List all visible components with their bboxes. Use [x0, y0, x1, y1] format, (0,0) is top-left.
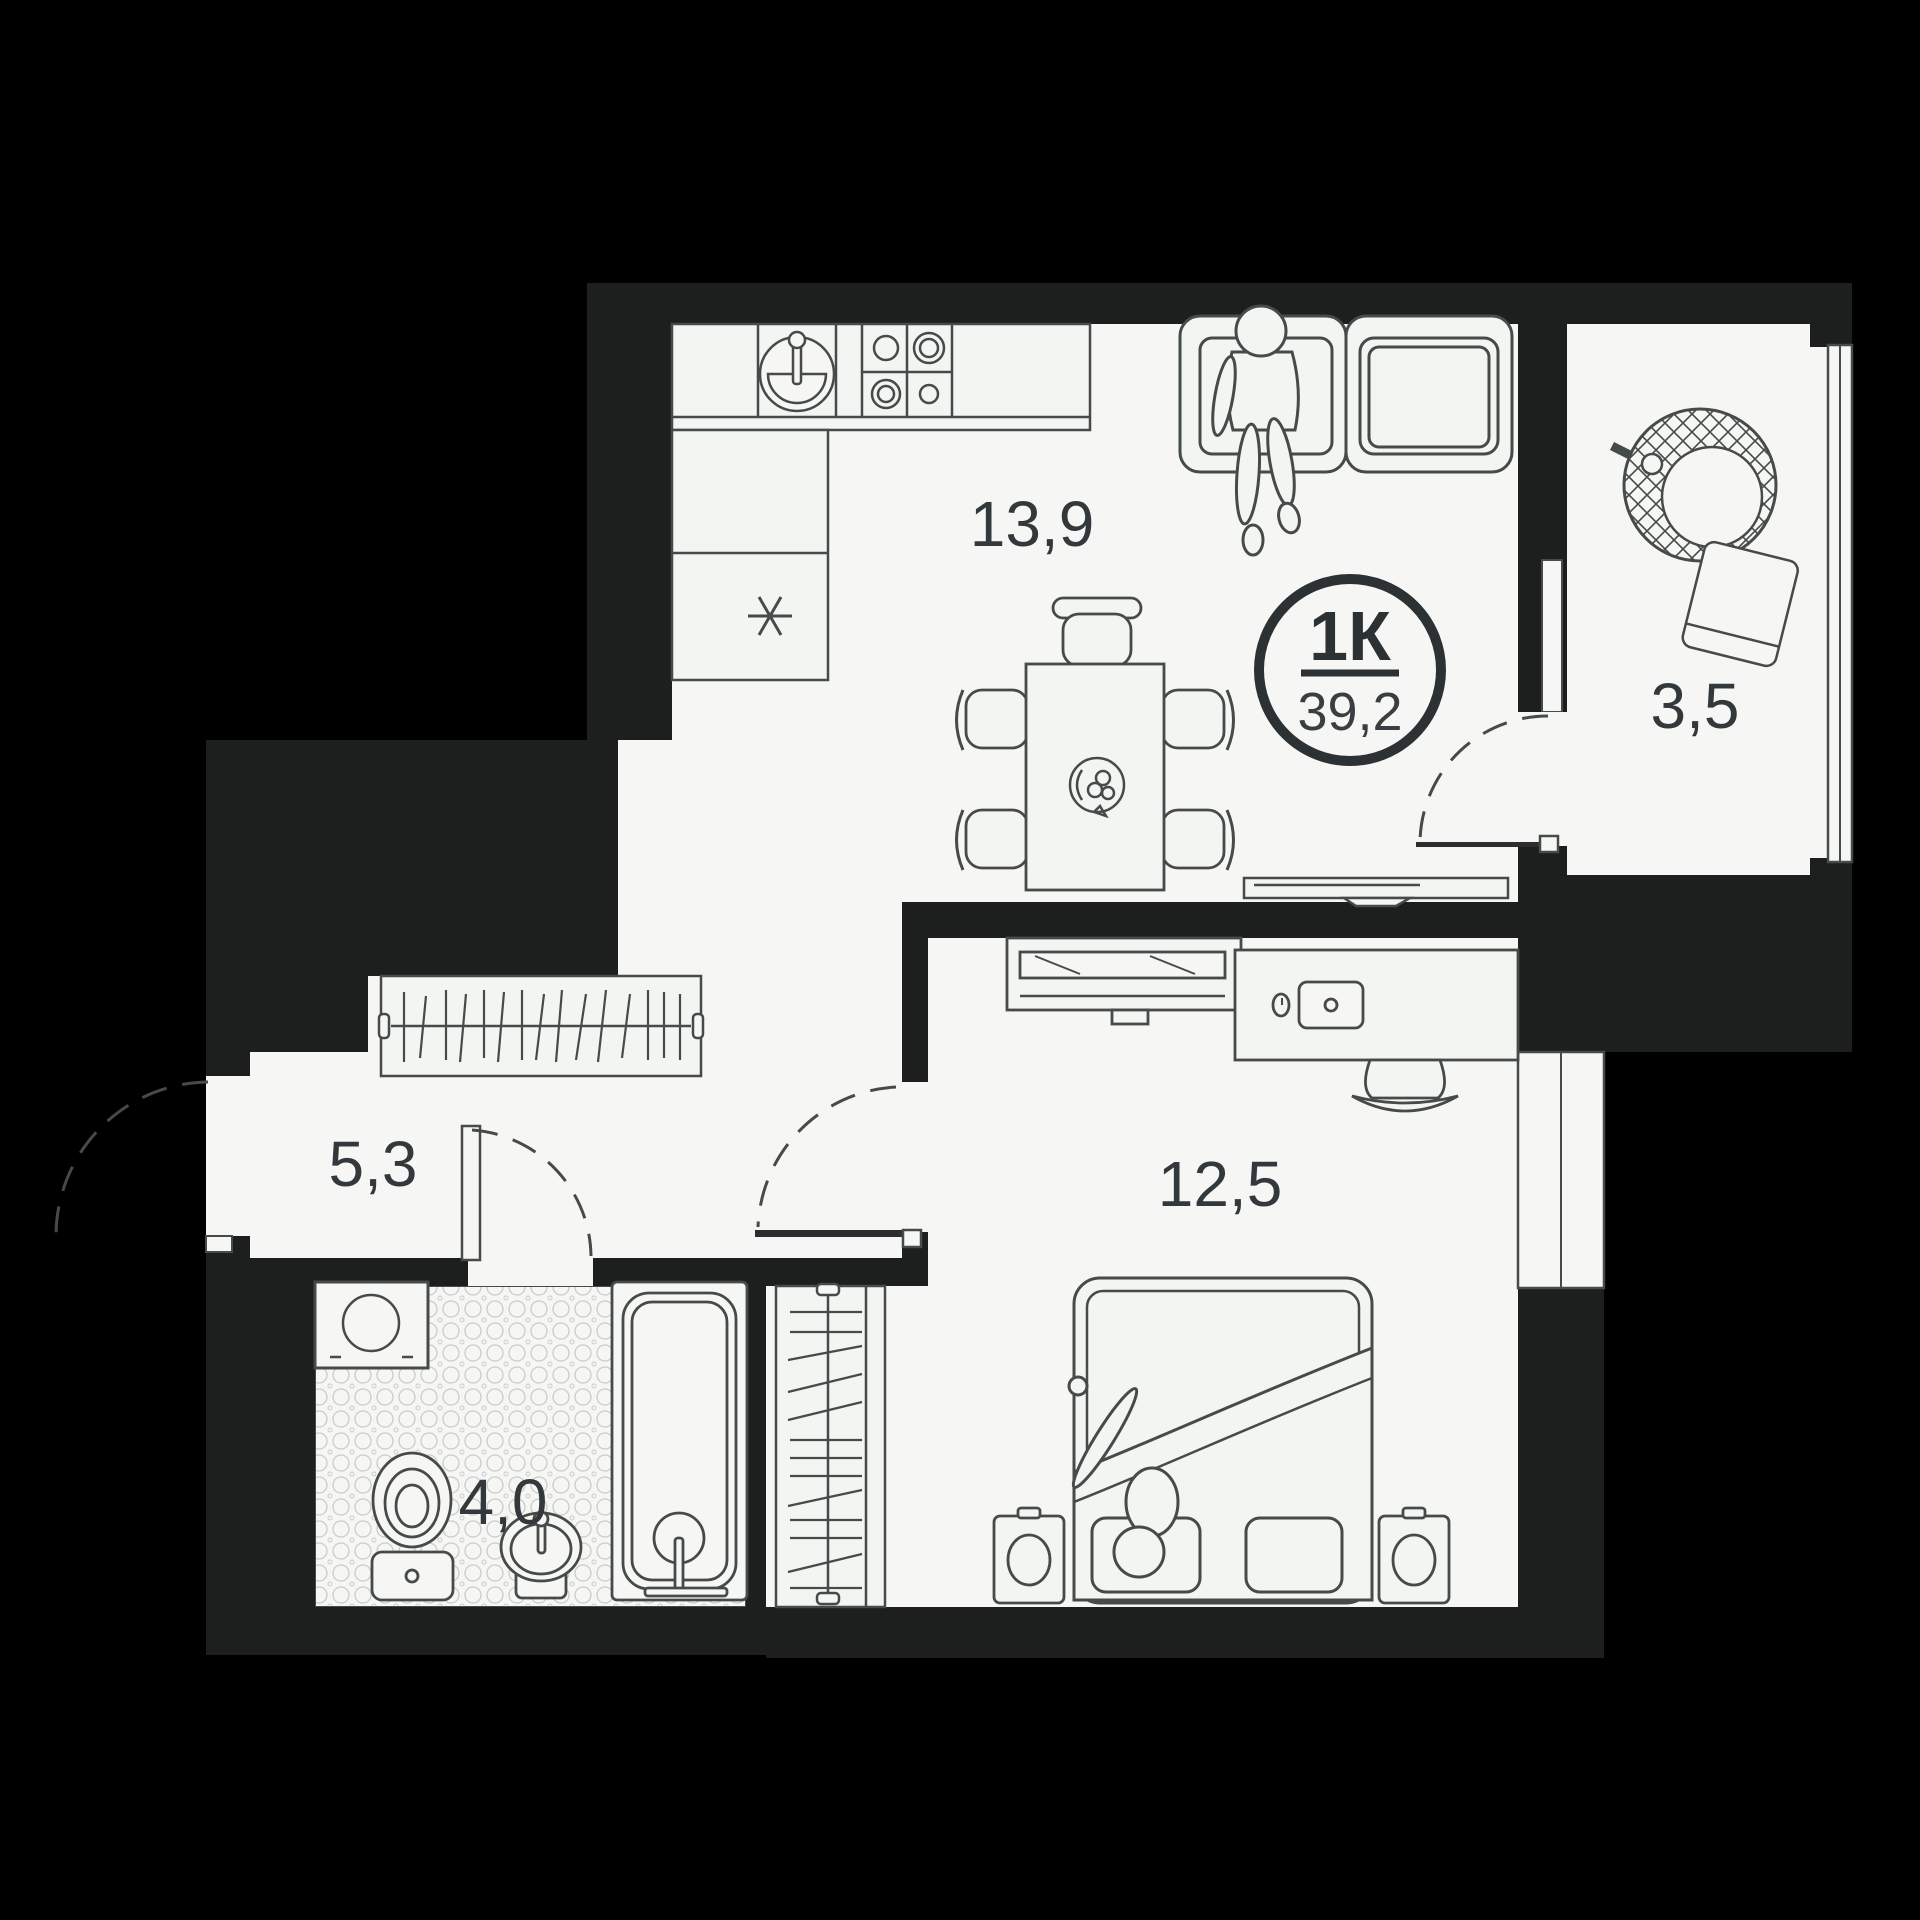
bedroom-tv-icon [1007, 938, 1241, 1024]
wall-bedroom-right-lower [1518, 1288, 1604, 1658]
balcony-doorway [1518, 712, 1567, 846]
bathroom-doorway [468, 1258, 593, 1286]
balcony-window-icon [1828, 345, 1852, 862]
label-bathroom-area: 4,0 [459, 1466, 548, 1538]
dining-chair-left-2 [957, 810, 1029, 870]
desk-icon [1235, 950, 1518, 1060]
dining-chair-left-1 [957, 690, 1029, 750]
dining-chair-right-1 [1162, 690, 1234, 750]
kitchen-cabinet-column [672, 430, 828, 680]
wall-balcony-step-top [1810, 324, 1852, 347]
area-badge: 1К 39,2 [1259, 579, 1441, 761]
label-bedroom-area: 12,5 [1158, 1148, 1283, 1220]
wall-bath-bottom [206, 1607, 766, 1655]
toilet-icon [372, 1453, 453, 1600]
bathroom-door-leaf [462, 1126, 480, 1260]
label-kitchen-living-area: 13,9 [970, 488, 1095, 560]
nightstand-left [994, 1508, 1064, 1603]
hall-wardrobe-hangers-icon [379, 976, 703, 1076]
bedroom-doorway [902, 1082, 928, 1232]
entrance-door-frame [206, 1236, 232, 1252]
wall-left-upper [587, 324, 672, 740]
wall-hall-top [206, 976, 368, 1052]
wall-living-bedroom [902, 902, 1518, 938]
laptop-icon [1299, 982, 1363, 1028]
room-hallway-floor [250, 1052, 760, 1260]
corridor-floor [760, 976, 902, 1260]
table-lamp-icon [1008, 1535, 1050, 1585]
wall-bath-left [206, 1260, 315, 1655]
pillow-right [1246, 1518, 1342, 1592]
floor-plan-canvas: 1К 39,2 [0, 0, 1920, 1920]
label-hallway-area: 5,3 [329, 1128, 418, 1200]
wall-block-mid-left [206, 740, 618, 976]
bedroom-wardrobe-hangers-icon [776, 1284, 885, 1607]
bedroom-window-icon [1518, 1052, 1604, 1288]
wall-bedroom-bottom [766, 1607, 1604, 1658]
dining-chair-head [1053, 598, 1141, 666]
bedroom-door-hinge [903, 1230, 921, 1247]
desk-chair-icon [1352, 1060, 1458, 1111]
bedroom-door-leaf [755, 1230, 903, 1237]
wall-bedroom-door-return [902, 938, 928, 1082]
bed-icon [1067, 1278, 1372, 1603]
kitchen-counter [672, 324, 1090, 430]
entrance-doorway [206, 1076, 250, 1236]
bathtub-icon [612, 1282, 747, 1600]
badge-rooms-label: 1К [1309, 597, 1391, 675]
label-balcony-area: 3,5 [1651, 670, 1740, 742]
room-living-lower-floor [618, 740, 902, 976]
balcony-door-threshold [1416, 842, 1548, 847]
wall-corner-balcony-bedroom [1518, 875, 1852, 1052]
table-lamp-icon [1393, 1535, 1435, 1585]
dining-chair-right-2 [1162, 810, 1234, 870]
nightstand-right [1379, 1508, 1449, 1603]
balcony-door-hinge [1540, 836, 1558, 852]
wall-bath-bedroom [746, 1284, 766, 1607]
balcony-door-leaf [1542, 560, 1562, 712]
badge-total-area: 39,2 [1297, 682, 1402, 742]
washing-machine-icon [315, 1282, 428, 1368]
floor-plan: 1К 39,2 [0, 0, 1920, 1920]
